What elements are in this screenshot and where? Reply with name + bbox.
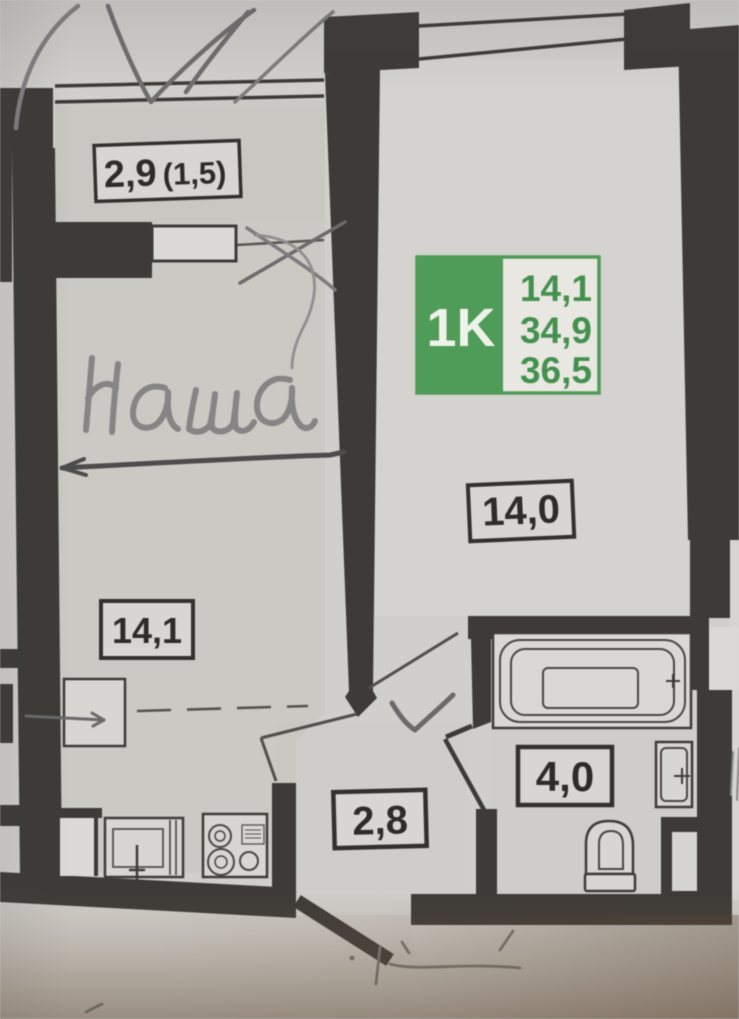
svg-text:2,8: 2,8	[352, 798, 409, 843]
svg-text:14,1: 14,1	[112, 610, 182, 651]
svg-text:14,1: 14,1	[520, 268, 592, 309]
svg-text:4,0: 4,0	[536, 753, 594, 800]
svg-text:36,5: 36,5	[520, 350, 592, 391]
svg-text:14,0: 14,0	[481, 487, 561, 534]
svg-text:2,9(1,5): 2,9(1,5)	[103, 150, 227, 196]
svg-text:34,9: 34,9	[520, 310, 592, 351]
svg-text:1K: 1K	[426, 298, 495, 358]
